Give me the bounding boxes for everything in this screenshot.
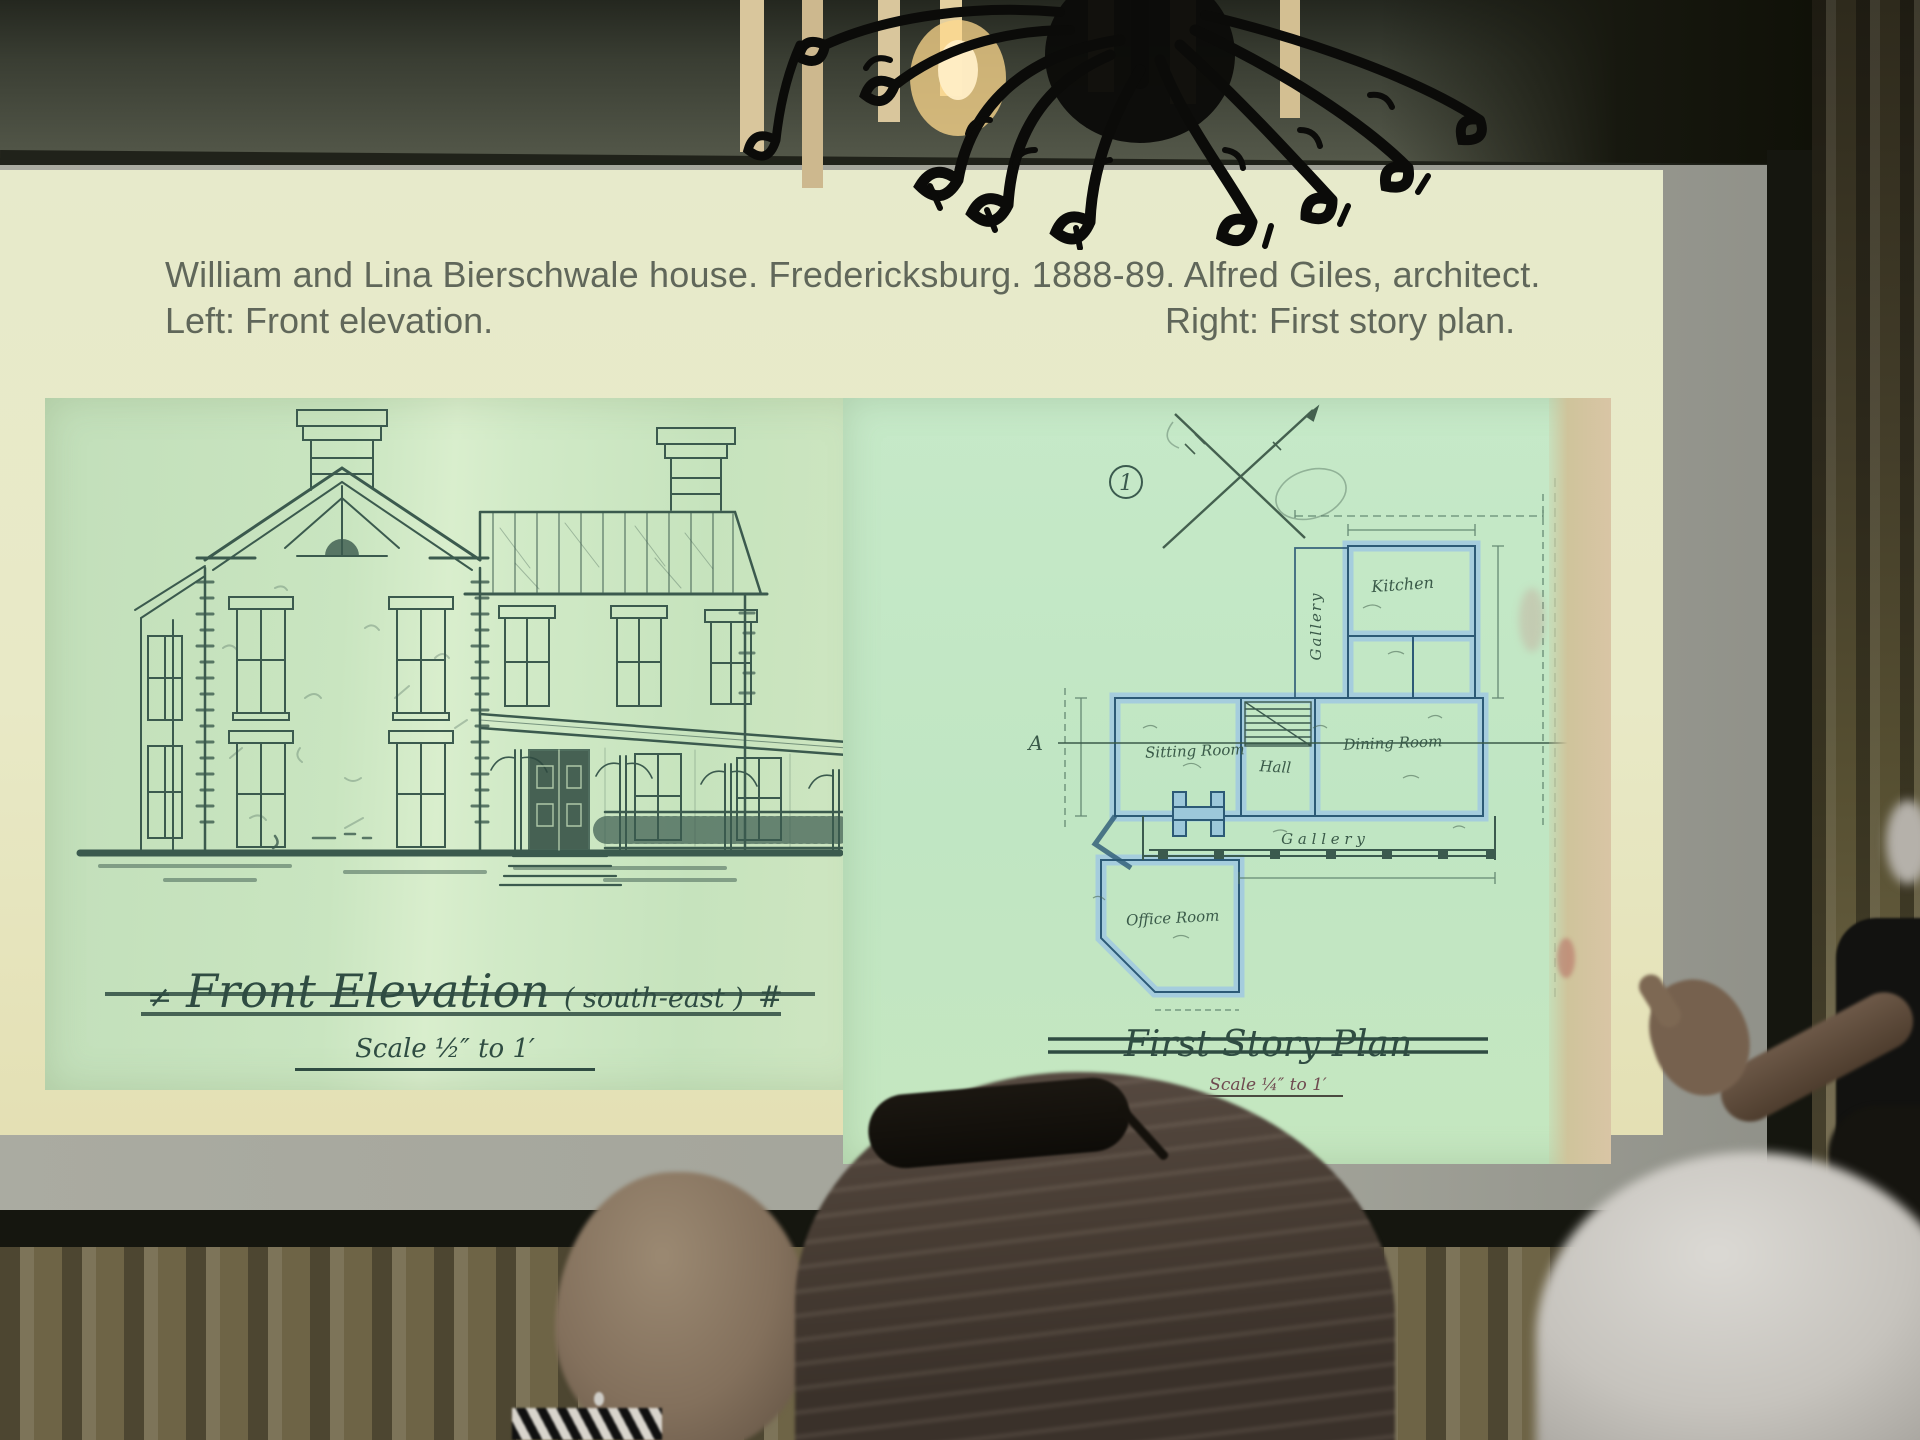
chandelier <box>640 0 1580 250</box>
plan-sheet-number: 1 <box>1119 471 1133 496</box>
earring <box>594 1392 604 1406</box>
room-label-office-room: Office Room <box>1126 907 1220 930</box>
room-label-sitting-room: Sitting Room <box>1145 740 1245 761</box>
zebra-stripe-top <box>512 1408 662 1440</box>
plan-scale-note: Scale ¼″ to 1′ <box>1209 1075 1327 1095</box>
plan-marker-a: A <box>1027 731 1043 755</box>
plan-sketch: 1 <box>843 398 1611 1164</box>
plan-drawing: 1 <box>843 398 1611 1164</box>
room-label-hall: Hall <box>1258 757 1292 777</box>
caption-flourish: ≠ <box>147 980 172 1015</box>
slide-subtitle-right: Right: First story plan. <box>1165 300 1515 342</box>
slide-title: William and Lina Bierschwale house. Fred… <box>165 252 1585 298</box>
room-label-dining-room: Dining Room <box>1342 732 1442 753</box>
lecture-room-photo: William and Lina Bierschwale house. Fred… <box>0 0 1920 1440</box>
elevation-drawing: ≠ Front Elevation ( south-east ) # Scale… <box>45 398 869 1090</box>
room-label-gallery-side: Gallery <box>1307 591 1325 660</box>
plan-caption: First Story Plan <box>1123 1024 1412 1065</box>
room-label-kitchen: Kitchen <box>1370 573 1435 596</box>
plan-paper-tan-edge <box>1549 398 1611 1164</box>
chandelier-arms <box>748 0 1482 248</box>
slide-subtitle-left: Left: Front elevation. <box>165 300 493 342</box>
elevation-caption: ≠ Front Elevation ( south-east ) # <box>115 964 815 1018</box>
elevation-scale-note: Scale ½″ to 1′ <box>295 1034 595 1071</box>
slide: William and Lina Bierschwale house. Fred… <box>0 170 1663 1135</box>
room-label-gallery-front: G a l l e r y <box>1281 830 1365 848</box>
elevation-caption-paren: ( south-east ) <box>564 983 744 1014</box>
elevation-caption-text: Front Elevation <box>186 964 550 1018</box>
elevation-caption-mark: # <box>758 980 783 1015</box>
plan-stain <box>1557 938 1575 978</box>
plan-stain <box>1519 588 1545 652</box>
